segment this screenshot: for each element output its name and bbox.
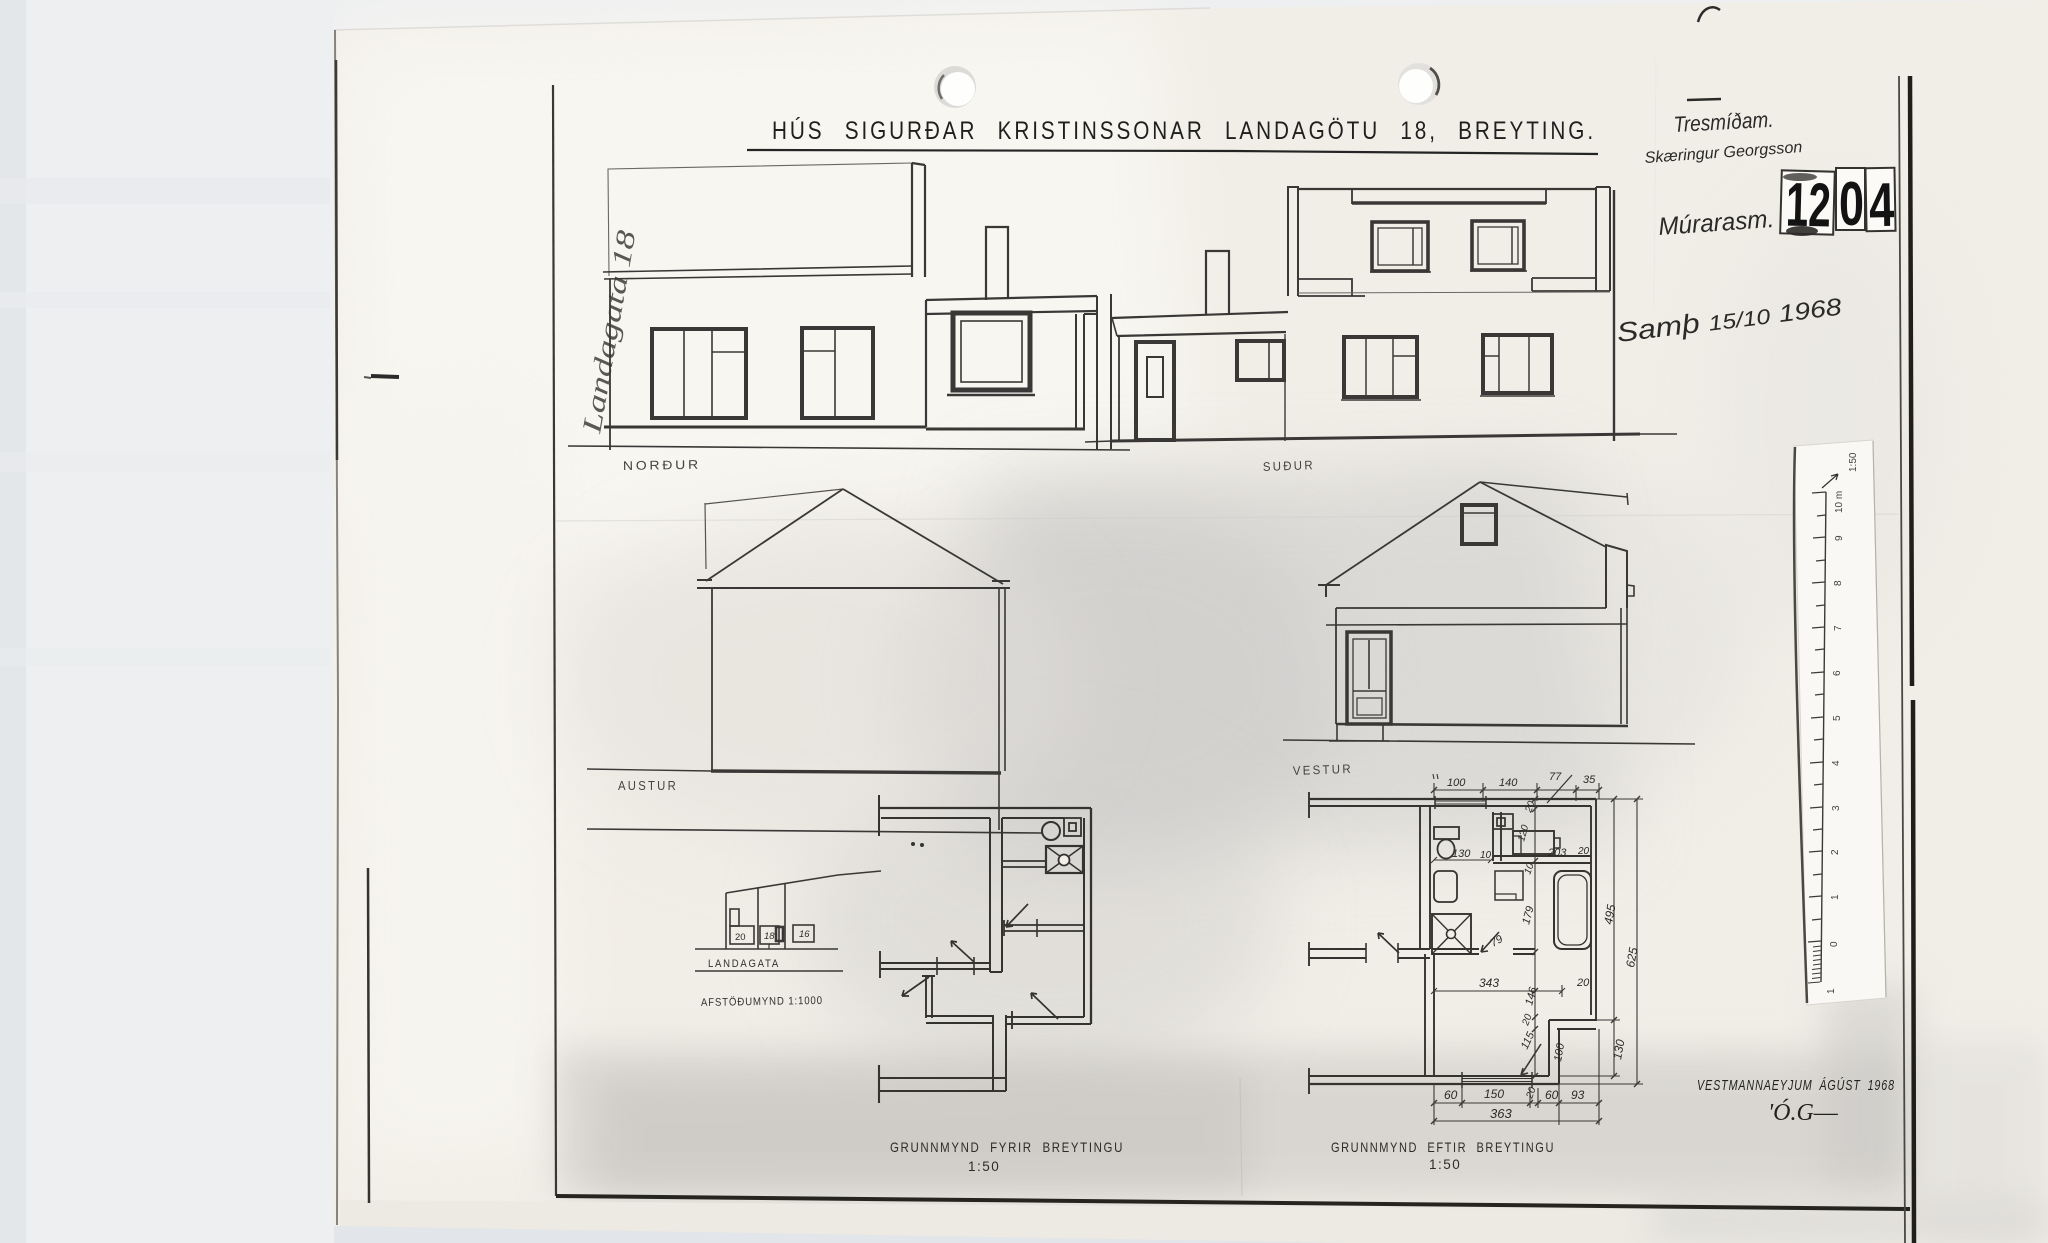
svg-text:VESTMANNAEYJUM ÁGÚST 1968: VESTMANNAEYJUM ÁGÚST 1968: [1697, 1077, 1895, 1094]
svg-text:150: 150: [1484, 1087, 1504, 1101]
svg-text:5: 5: [1832, 715, 1843, 721]
svg-text:20: 20: [1577, 846, 1590, 857]
svg-text:1:50: 1:50: [968, 1159, 1000, 1174]
svg-text:1: 1: [1826, 988, 1837, 994]
svg-text:1:50: 1:50: [1429, 1157, 1461, 1172]
svg-text:18: 18: [764, 931, 775, 942]
svg-text:0: 0: [1829, 941, 1840, 947]
svg-text:SUÐUR: SUÐUR: [1263, 458, 1315, 474]
svg-text:GRUNNMYND FYRIR BREYTINGU: GRUNNMYND FYRIR BREYTINGU: [890, 1139, 1124, 1155]
svg-text:9: 9: [1834, 535, 1845, 541]
svg-text:1: 1: [1830, 894, 1841, 900]
svg-text:4: 4: [1869, 171, 1896, 240]
svg-text:7: 7: [1833, 625, 1844, 631]
svg-text:'Ó.G―: 'Ó.G―: [1768, 1099, 1839, 1126]
svg-text:4: 4: [1831, 760, 1842, 766]
svg-text:20: 20: [1576, 977, 1590, 989]
svg-text:AUSTUR: AUSTUR: [618, 779, 678, 793]
svg-text:343: 343: [1479, 976, 1499, 990]
svg-text:10: 10: [1480, 850, 1492, 861]
svg-text:AFSTÖÐUMYND 1:1000: AFSTÖÐUMYND 1:1000: [701, 995, 823, 1009]
svg-text:100: 100: [1447, 777, 1466, 789]
svg-text:NORÐUR: NORÐUR: [623, 458, 701, 473]
svg-text:3: 3: [1831, 805, 1842, 811]
svg-text:20: 20: [735, 932, 746, 943]
svg-text:1:50: 1:50: [1848, 452, 1859, 472]
svg-text:12: 12: [1785, 170, 1832, 240]
svg-text:77: 77: [1549, 771, 1562, 783]
svg-text:2: 2: [1830, 849, 1841, 855]
svg-text:10 m: 10 m: [1834, 491, 1845, 513]
svg-text:60: 60: [1444, 1088, 1458, 1102]
svg-text:60: 60: [1545, 1088, 1559, 1102]
svg-text:363: 363: [1490, 1106, 1512, 1121]
svg-text:93: 93: [1571, 1088, 1585, 1102]
svg-text:140: 140: [1499, 777, 1518, 789]
svg-text:6: 6: [1832, 670, 1843, 676]
svg-text:LANDAGATA: LANDAGATA: [708, 958, 780, 970]
svg-text:Tresmíðam.: Tresmíðam.: [1673, 107, 1774, 137]
svg-text:16: 16: [799, 929, 810, 940]
svg-text:130: 130: [1452, 848, 1471, 860]
svg-text:VESTUR: VESTUR: [1293, 762, 1353, 778]
svg-text:8: 8: [1833, 580, 1844, 586]
svg-text:203: 203: [1547, 847, 1567, 859]
svg-text:35: 35: [1583, 774, 1596, 786]
svg-text:HÚS SIGURÐAR KRISTINSSONAR LAN: HÚS SIGURÐAR KRISTINSSONAR LANDAGÖTU 18,…: [772, 116, 1596, 145]
svg-text:0: 0: [1839, 170, 1864, 239]
svg-text:GRUNNMYND EFTIR BREYTINGU: GRUNNMYND EFTIR BREYTINGU: [1331, 1139, 1555, 1155]
